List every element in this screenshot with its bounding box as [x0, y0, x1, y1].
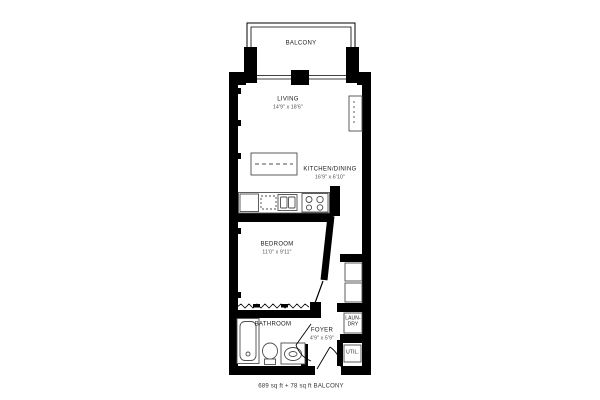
utility-label: UTIL. — [346, 350, 359, 356]
laundry-label-line2: DRY — [348, 322, 359, 328]
hall-closet-icon — [345, 263, 362, 302]
kitchen-counter — [239, 193, 330, 214]
laundry-label: LAUN- DRY — [345, 317, 361, 328]
double-sink-icon — [278, 195, 297, 211]
area-caption: 689 sq ft + 78 sq ft BALCONY — [258, 384, 343, 391]
closet-zigzag-icon — [237, 304, 309, 308]
kitchen-dining-label: KITCHEN/DINING — [303, 167, 356, 174]
balcony-railing-icon — [247, 23, 355, 76]
fridge-icon — [240, 194, 259, 212]
dishwasher-icon — [261, 196, 276, 209]
bedroom-label: BEDROOM — [260, 242, 293, 249]
bathroom-label: BATHROOM — [255, 322, 292, 329]
living-closet-icon — [349, 96, 362, 131]
living-label: LIVING — [277, 97, 298, 104]
bedroom-dims: 11'0" x 9'11" — [262, 250, 291, 256]
kitchen-island-icon — [251, 153, 297, 175]
toilet-icon — [263, 343, 278, 365]
bedroom-sliding-door-icon — [315, 216, 331, 303]
floorplan-canvas: BALCONY LIVING 14'9" x 18'6" KITCHEN/DIN… — [0, 0, 600, 400]
cooktop-icon — [302, 194, 328, 213]
balcony-label: BALCONY — [286, 41, 317, 48]
kitchen-dining-dims: 16'9" x 6'10" — [315, 175, 345, 181]
living-dims: 14'9" x 18'6" — [273, 105, 303, 111]
foyer-dims: 4'9" x 5'9" — [310, 336, 334, 342]
foyer-label: FOYER — [311, 328, 333, 335]
floorplan-drawing — [0, 0, 600, 400]
vanity-sink-icon — [281, 343, 305, 364]
